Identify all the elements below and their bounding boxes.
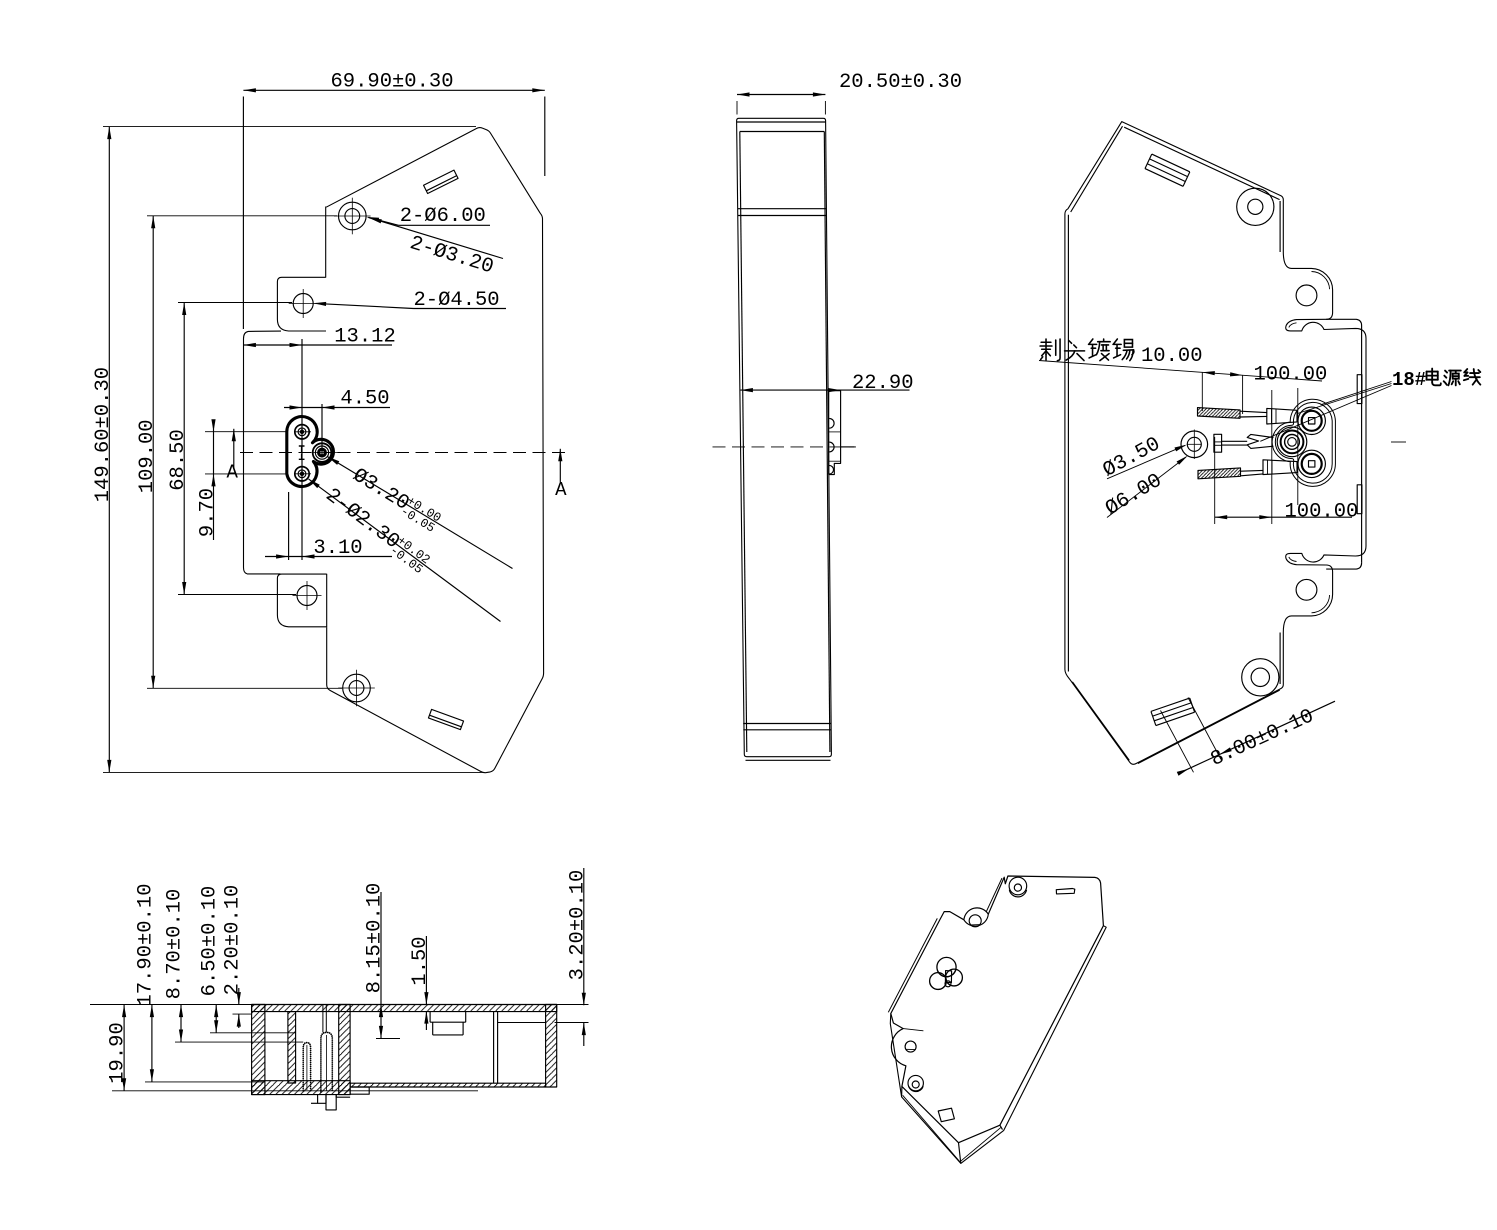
svg-text:8.70±0.10: 8.70±0.10	[164, 889, 187, 1000]
svg-text:2-Ø4.50: 2-Ø4.50	[414, 289, 500, 312]
svg-text:2.20±0.10: 2.20±0.10	[221, 885, 244, 996]
svg-text:A: A	[226, 462, 238, 484]
svg-text:22.90: 22.90	[852, 372, 914, 395]
svg-text:68.50: 68.50	[167, 429, 190, 491]
svg-text:A: A	[555, 479, 567, 501]
svg-text:1.50: 1.50	[409, 936, 432, 985]
svg-text:8.15±0.10: 8.15±0.10	[364, 883, 387, 994]
svg-text:18#: 18#	[1392, 369, 1426, 391]
svg-text:19.90: 19.90	[107, 1022, 130, 1084]
svg-text:69.90±0.30: 69.90±0.30	[330, 70, 453, 93]
svg-text:17.90±0.10: 17.90±0.10	[134, 883, 157, 1006]
svg-text:3.10: 3.10	[313, 537, 362, 560]
svg-text:4.50: 4.50	[340, 388, 389, 411]
svg-text:10.00: 10.00	[1141, 345, 1203, 368]
svg-text:100.00: 100.00	[1285, 501, 1359, 524]
svg-text:2-Ø6.00: 2-Ø6.00	[400, 205, 486, 228]
svg-text:6.50±0.10: 6.50±0.10	[199, 886, 222, 997]
svg-text:13.12: 13.12	[334, 326, 396, 349]
svg-text:100.00: 100.00	[1254, 364, 1328, 387]
svg-text:149.60±0.30: 149.60±0.30	[92, 367, 115, 502]
svg-text:9.70: 9.70	[196, 488, 219, 537]
svg-text:109.00: 109.00	[136, 419, 159, 493]
svg-text:20.50±0.30: 20.50±0.30	[839, 71, 962, 94]
svg-text:3.20±0.10: 3.20±0.10	[566, 870, 589, 981]
